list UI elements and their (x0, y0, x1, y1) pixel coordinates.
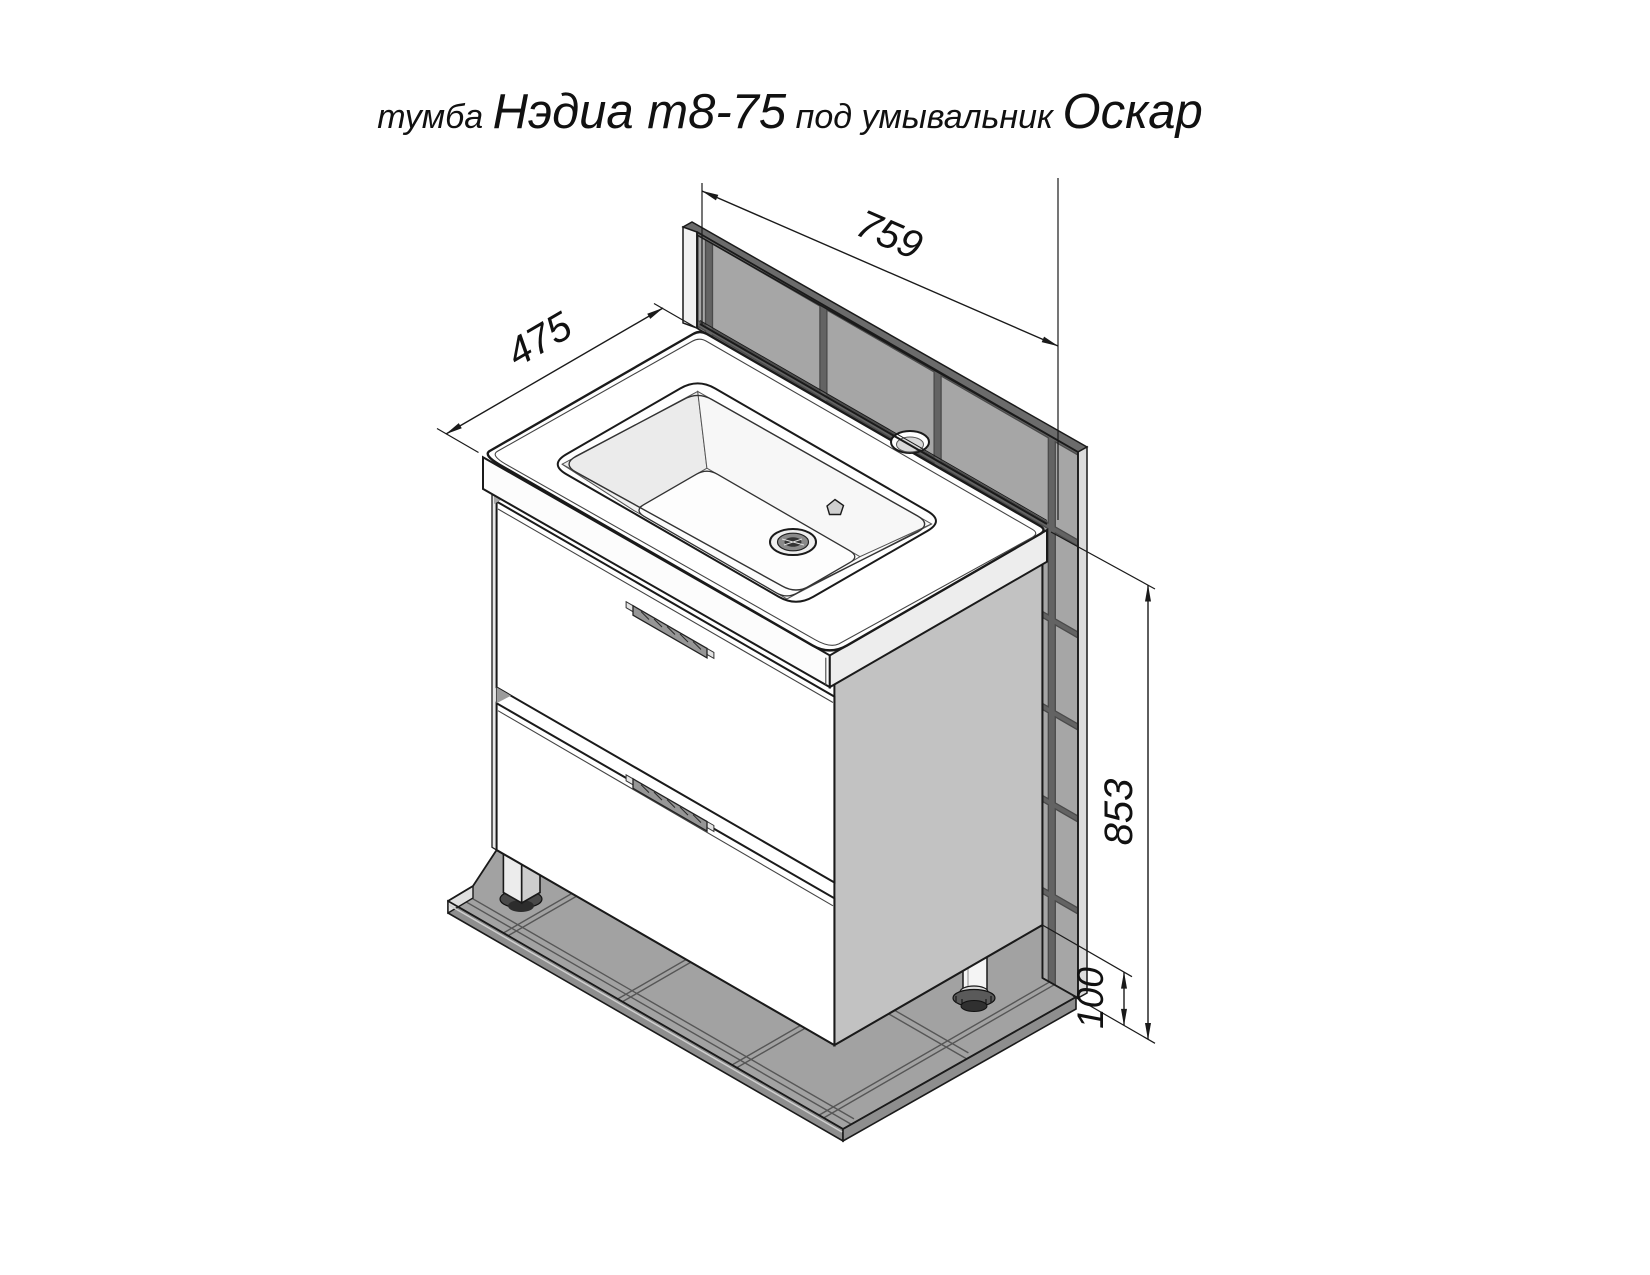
wall-left-edge (683, 227, 697, 328)
title-prefix: тумба (377, 98, 492, 136)
vanity-technical-drawing: 759 475 853 100 тумба Нэдиа т8-75 под ум… (0, 0, 1650, 1275)
title-sink-model: Оскар (1063, 85, 1203, 139)
title-model: Нэдиа т8-75 (493, 85, 787, 139)
title-middle: под умывальник (786, 98, 1062, 136)
dimension-width-label: 759 (850, 202, 929, 269)
dimension-height-label: 853 (1097, 779, 1141, 846)
wall-right-edge (1078, 447, 1087, 998)
drain (770, 529, 816, 555)
dimension-plinth-label: 100 (1070, 967, 1111, 1029)
dimension-depth-label: 475 (500, 304, 580, 376)
drawing-title: тумба Нэдиа т8-75 под умывальник Оскар (377, 85, 1203, 139)
technical-drawing-page: 759 475 853 100 тумба Нэдиа т8-75 под ум… (0, 0, 1650, 1275)
